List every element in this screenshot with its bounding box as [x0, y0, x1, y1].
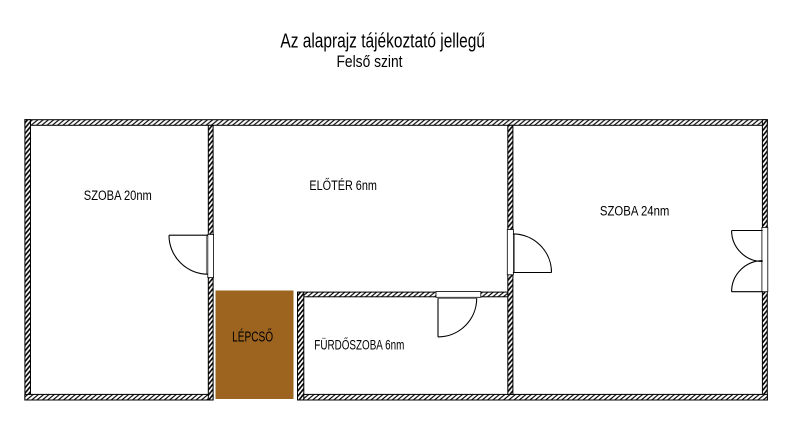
- svg-text:Felső szint: Felső szint: [337, 52, 403, 71]
- svg-text:ELŐTÉR 6nm: ELŐTÉR 6nm: [309, 178, 377, 193]
- svg-text:LÉPCSŐ: LÉPCSŐ: [232, 329, 273, 346]
- svg-text:SZOBA 20nm: SZOBA 20nm: [84, 188, 152, 203]
- svg-text:FÜRDŐSZOBA 6nm: FÜRDŐSZOBA 6nm: [314, 337, 404, 352]
- svg-text:SZOBA 24nm: SZOBA 24nm: [600, 203, 670, 218]
- svg-text:Az alaprajz tájékoztató jelleg: Az alaprajz tájékoztató jellegű: [280, 31, 485, 53]
